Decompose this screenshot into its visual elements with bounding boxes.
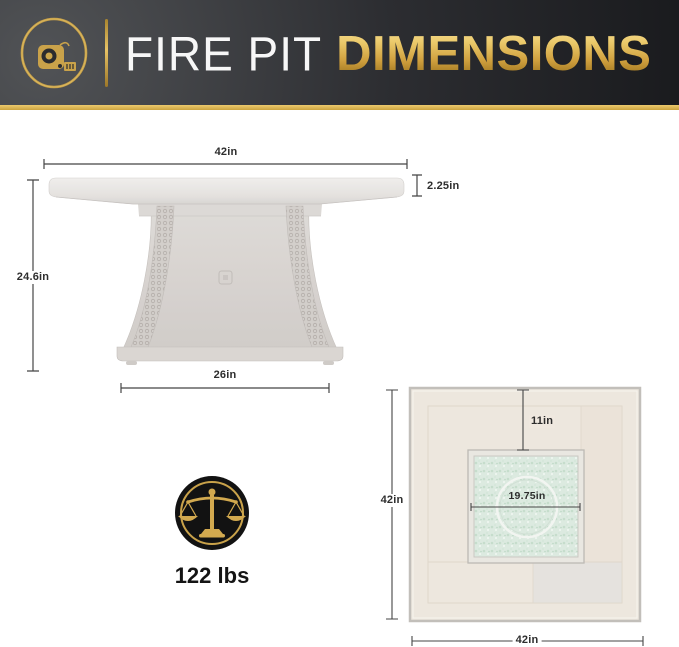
tape-measure-icon [16, 15, 92, 91]
dim-top-width: 42in [215, 146, 238, 159]
infographic-canvas: FIRE PIT DIMENSIONS [0, 0, 679, 647]
weight-value: 122 lbs [175, 563, 250, 589]
title-accent-text: DIMENSIONS [336, 26, 651, 82]
dim-height: 24.6in [14, 271, 52, 284]
dim-topview-height: 42in [378, 494, 407, 507]
dim-base-width: 26in [214, 369, 237, 382]
dim-top-thickness: 2.25in [427, 180, 459, 193]
dim-burner-diameter: 19.75in [508, 490, 545, 503]
header-gold-bar [0, 105, 679, 110]
fire-pit-top-view [370, 380, 679, 647]
balance-scale-icon [172, 473, 252, 553]
dim-edge-to-burner: 11in [529, 415, 555, 428]
header-banner: FIRE PIT DIMENSIONS [0, 0, 679, 105]
page-title: FIRE PIT DIMENSIONS [125, 26, 652, 82]
fire-pit-side-view [0, 130, 460, 400]
title-text: FIRE PIT [125, 25, 322, 81]
header-divider [105, 19, 108, 87]
dim-topview-width: 42in [513, 634, 542, 647]
